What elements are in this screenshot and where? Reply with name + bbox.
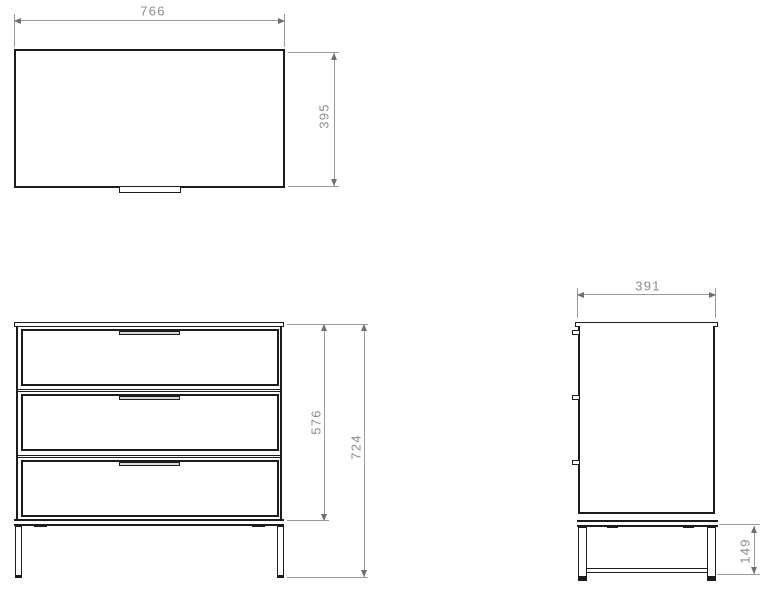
side-handle-tab-1 xyxy=(572,330,579,335)
drawer-handle-2 xyxy=(119,396,180,400)
front-rail-1 xyxy=(18,389,280,392)
plan-depth-dimension-line xyxy=(334,53,335,186)
side-leg-extension-top xyxy=(719,524,760,525)
front-drawer-1 xyxy=(21,329,279,386)
front-leg-right xyxy=(277,526,284,578)
plan-width-dimension-line xyxy=(14,20,285,21)
side-leg-extension-bottom xyxy=(717,574,760,575)
front-rail-2 xyxy=(18,455,280,458)
plan-width-label: 766 xyxy=(140,5,166,18)
side-bottom-rail xyxy=(577,520,718,527)
front-overall-height-dimension-line xyxy=(364,324,365,577)
furniture-technical-drawing: 766 395 576 724 xyxy=(0,0,768,599)
arrow-down-icon xyxy=(321,514,327,521)
front-extension-top xyxy=(287,324,368,325)
plan-outline xyxy=(14,49,285,188)
arrow-up-icon xyxy=(361,324,367,331)
drawer-handle-1 xyxy=(119,331,180,335)
drawer-handle-3 xyxy=(119,462,180,466)
front-extension-724-bottom xyxy=(287,577,368,578)
side-handle-tab-3 xyxy=(572,460,579,465)
side-rail-tab-left xyxy=(607,526,618,528)
arrow-down-icon xyxy=(751,567,757,574)
arrow-right-icon xyxy=(709,292,716,298)
front-drawer-3 xyxy=(21,460,279,517)
side-leg-back xyxy=(707,527,716,581)
arrow-left-icon xyxy=(14,18,21,24)
side-leg-front xyxy=(578,527,587,581)
front-bottom-rail xyxy=(14,519,284,526)
side-panel xyxy=(578,326,715,514)
front-drawer-2 xyxy=(21,394,279,451)
side-leg-stretcher xyxy=(587,568,707,573)
arrow-right-icon xyxy=(278,18,285,24)
arrow-down-icon xyxy=(361,570,367,577)
side-depth-dimension-line xyxy=(577,294,716,295)
front-rail-tab-left xyxy=(34,525,47,527)
side-depth-label: 391 xyxy=(635,280,661,293)
plan-handle-notch xyxy=(119,187,181,193)
side-handle-tab-2 xyxy=(572,395,579,400)
arrow-down-icon xyxy=(331,179,337,186)
front-leg-left xyxy=(15,526,22,578)
front-rail-tab-right xyxy=(252,525,265,527)
front-cabinet-height-label: 576 xyxy=(310,409,323,435)
side-leg-height-label: 149 xyxy=(739,538,752,564)
arrow-up-icon xyxy=(331,53,337,60)
plan-depth-extension-bottom xyxy=(288,186,339,187)
front-overall-height-label: 724 xyxy=(350,434,363,460)
arrow-left-icon xyxy=(577,292,584,298)
side-rail-tab-right xyxy=(683,526,694,528)
arrow-up-icon xyxy=(321,324,327,331)
arrow-up-icon xyxy=(751,526,757,533)
plan-depth-label: 395 xyxy=(318,103,331,129)
front-cabinet-height-dimension-line xyxy=(324,324,325,521)
